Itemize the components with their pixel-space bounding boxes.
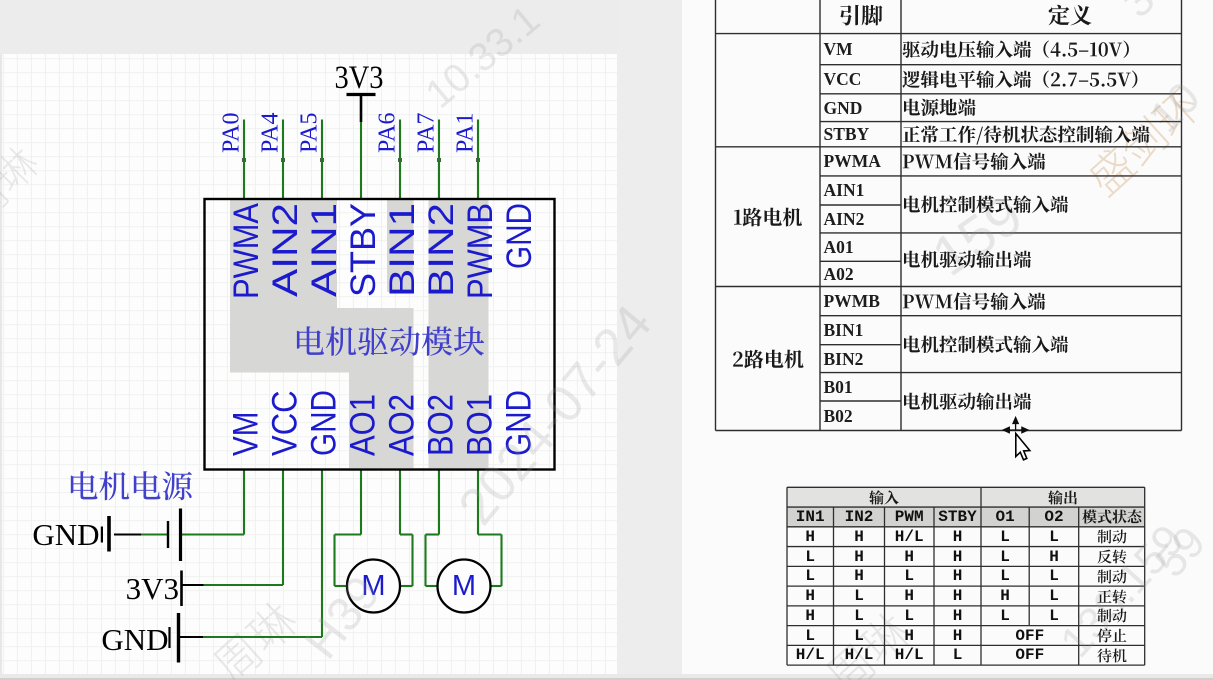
svg-text:M: M <box>452 570 476 602</box>
svg-text:GND: GND <box>500 203 539 269</box>
svg-text:PWMA: PWMA <box>227 202 266 299</box>
svg-text:PA4: PA4 <box>258 113 284 153</box>
svg-text:3V3: 3V3 <box>335 60 384 96</box>
svg-text:VM: VM <box>227 412 266 457</box>
svg-text:GND: GND <box>305 390 344 456</box>
svg-text:PA0: PA0 <box>219 113 245 153</box>
svg-text:PWMB: PWMB <box>461 203 500 299</box>
svg-text:BIN2: BIN2 <box>422 203 461 297</box>
svg-text:AO2: AO2 <box>383 394 422 456</box>
svg-text:33.: 33. <box>1112 0 1190 27</box>
svg-text:AIN1: AIN1 <box>305 203 344 297</box>
svg-text:PA7: PA7 <box>414 113 440 153</box>
svg-text:PA5: PA5 <box>297 113 323 153</box>
svg-text:STBY: STBY <box>344 203 383 297</box>
svg-text:VCC: VCC <box>266 391 305 457</box>
svg-text:AIN2: AIN2 <box>266 203 305 297</box>
svg-text:PA6: PA6 <box>375 113 401 153</box>
svg-text:GND: GND <box>32 517 99 552</box>
svg-text:BIN1: BIN1 <box>383 203 422 297</box>
svg-text:3V3: 3V3 <box>126 571 179 606</box>
svg-text:BO2: BO2 <box>422 394 461 456</box>
svg-text:10.33.1: 10.33.1 <box>418 0 549 117</box>
svg-text:PA1: PA1 <box>453 113 479 153</box>
svg-text:GND: GND <box>101 622 168 657</box>
svg-text:AO1: AO1 <box>344 394 383 456</box>
